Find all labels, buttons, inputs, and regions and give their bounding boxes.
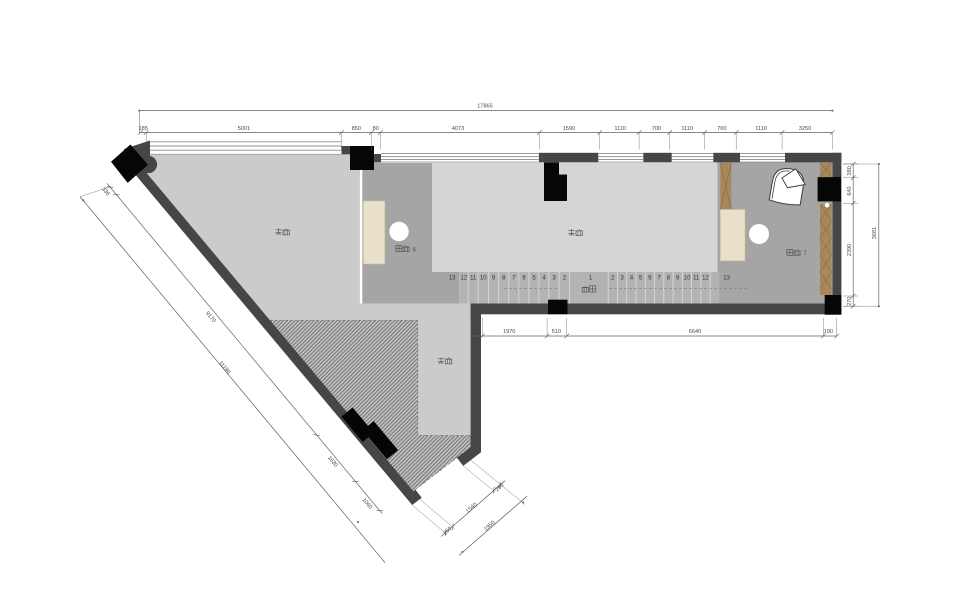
svg-text:10: 10 [684,276,691,282]
svg-text:80: 80 [373,126,379,132]
svg-text:11: 11 [470,276,477,282]
svg-text:185: 185 [139,126,148,132]
svg-text:17865: 17865 [477,104,493,110]
svg-text:12: 12 [702,276,709,282]
svg-text:13: 13 [723,276,730,282]
svg-text:3250: 3250 [799,126,811,132]
svg-text:3681: 3681 [872,227,878,239]
svg-text:1590: 1590 [563,126,575,132]
svg-text:850: 850 [352,126,361,132]
svg-text:380: 380 [847,166,853,175]
svg-text:13: 13 [449,276,456,282]
svg-text:10: 10 [480,276,487,282]
svg-text:640: 640 [847,186,853,195]
svg-text:700: 700 [717,126,726,132]
svg-text:510: 510 [552,329,561,335]
svg-text:2390: 2390 [847,244,853,256]
svg-text:12: 12 [460,276,467,282]
svg-text:4073: 4073 [452,126,464,132]
svg-text:270: 270 [847,297,853,306]
svg-text:6640: 6640 [689,329,701,335]
svg-text:190: 190 [824,329,833,335]
svg-text:11: 11 [693,276,700,282]
svg-text:1110: 1110 [755,126,767,132]
svg-text:1970: 1970 [503,329,515,335]
svg-text:700: 700 [652,126,661,132]
svg-text:5001: 5001 [238,126,250,132]
svg-text:1110: 1110 [681,126,693,132]
svg-text:1110: 1110 [614,126,626,132]
